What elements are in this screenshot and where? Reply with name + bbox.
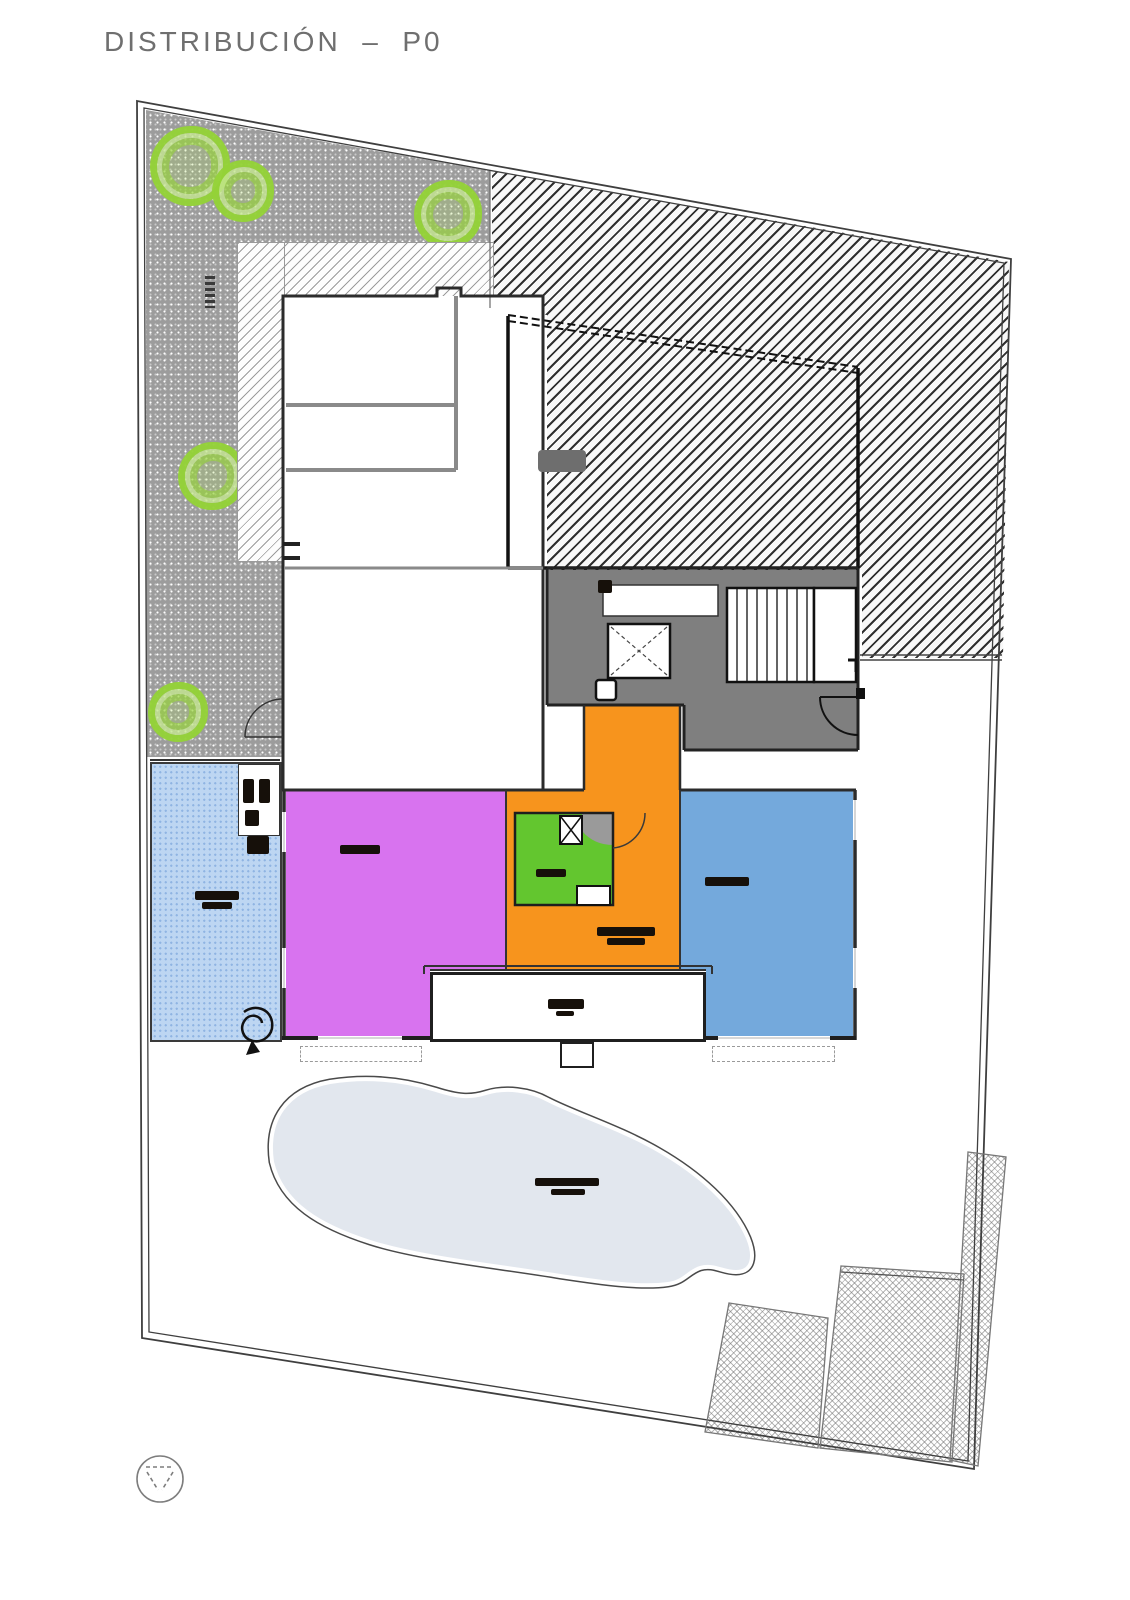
orange-room-label-line1 — [597, 927, 655, 936]
porch-label-line2 — [556, 1011, 574, 1016]
tree-icon — [212, 160, 274, 222]
side-strip-label-line1 — [195, 891, 239, 900]
awning-dashed-outline-left — [300, 1046, 422, 1062]
existing-rooms-block — [283, 296, 543, 790]
blue-room-label — [705, 877, 749, 886]
neighbor-roof-patch — [538, 450, 586, 472]
floor-plan-sheet: DISTRIBUCIÓN – P0 — [0, 0, 1130, 1600]
porch-label-line1 — [548, 999, 584, 1009]
purple-room-label — [340, 845, 380, 854]
pool — [271, 1079, 752, 1285]
porch-step — [560, 1042, 594, 1068]
pool-label-line1 — [535, 1178, 599, 1186]
tree-icon — [178, 442, 246, 510]
bath-fixture-glyph-a — [243, 779, 254, 803]
awning-dashed-outline-right — [712, 1046, 835, 1062]
bath-fixture-glyph-c — [245, 810, 259, 826]
wall-hatch-band-left — [237, 242, 285, 562]
bath-fixture-glyph-b — [259, 779, 270, 803]
tree-icon — [414, 180, 482, 248]
pool-label-line2 — [551, 1189, 585, 1195]
tree-icon — [148, 682, 208, 742]
fixture-glyph-d — [247, 836, 269, 854]
orange-room-label-line2 — [607, 938, 645, 945]
side-strip-label-line2 — [202, 902, 232, 909]
green-room-label — [536, 869, 566, 877]
north-arrow — [137, 1456, 183, 1502]
page-title: DISTRIBUCIÓN – P0 — [104, 26, 443, 58]
vestibule-block — [598, 580, 612, 593]
terrace-vertical-note — [205, 276, 215, 308]
